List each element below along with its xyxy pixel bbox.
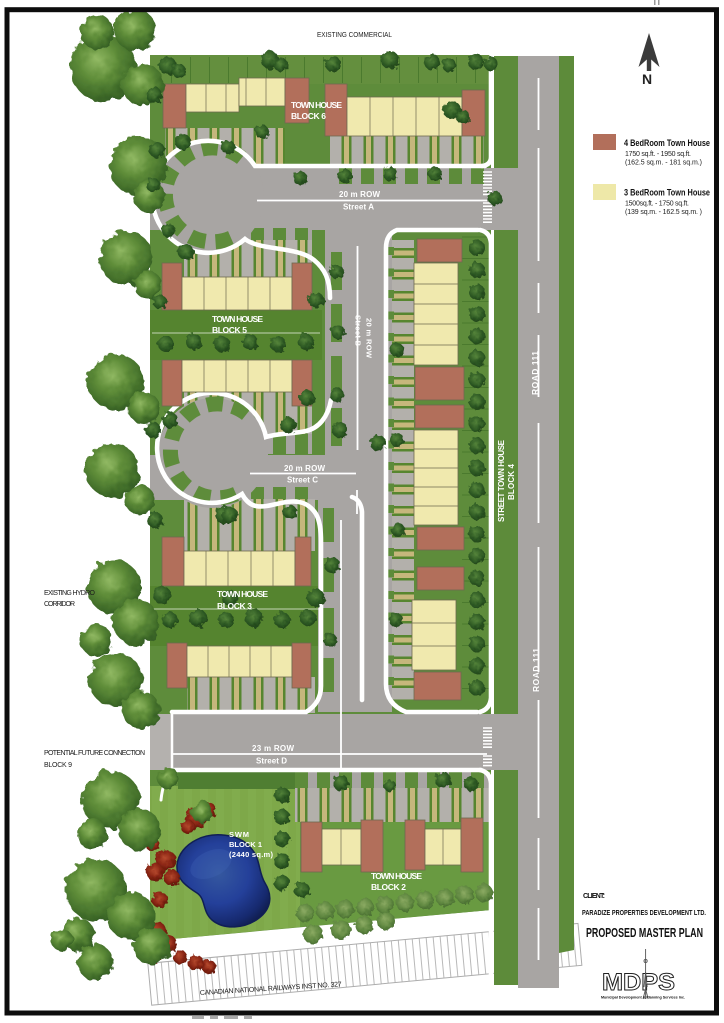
svg-text:POTENTIAL FUTURE CONNECTION: POTENTIAL FUTURE CONNECTION — [44, 750, 145, 757]
svg-text:3 BedRoom Town House: 3 BedRoom Town House — [624, 188, 710, 198]
svg-text:20 m ROW: 20 m ROW — [284, 464, 325, 473]
svg-text:SWM: SWM — [229, 830, 249, 839]
svg-text:Street D: Street D — [256, 757, 287, 766]
svg-text:1750 sq.ft. - 1950 sq.ft.: 1750 sq.ft. - 1950 sq.ft. — [625, 151, 691, 158]
svg-text:TOWN HOUSE: TOWN HOUSE — [371, 871, 422, 881]
svg-text:EXISTING COMMERCIAL: EXISTING COMMERCIAL — [317, 30, 392, 39]
svg-text:N: N — [642, 71, 652, 87]
svg-text:BLOCK 5: BLOCK 5 — [212, 325, 247, 335]
svg-text:PROPOSED MASTER PLAN: PROPOSED MASTER PLAN — [586, 926, 703, 940]
svg-text:20 m ROW: 20 m ROW — [339, 190, 380, 199]
svg-text:20 m ROW: 20 m ROW — [365, 318, 374, 359]
svg-text:CORRIDOR: CORRIDOR — [44, 601, 75, 608]
svg-text:TOWN HOUSE: TOWN HOUSE — [212, 314, 263, 324]
svg-text:(162.5 sq.m. - 181 sq.m.): (162.5 sq.m. - 181 sq.m.) — [625, 160, 702, 167]
svg-text:ROAD 111: ROAD 111 — [531, 648, 541, 692]
svg-text:BLOCK 3: BLOCK 3 — [217, 601, 252, 611]
svg-text:BLOCK 6: BLOCK 6 — [291, 111, 326, 121]
svg-text:EXISTING HYDRO: EXISTING HYDRO — [44, 590, 96, 597]
svg-text:BLOCK 9: BLOCK 9 — [44, 762, 72, 769]
svg-text:ROAD 111: ROAD 111 — [530, 351, 540, 395]
svg-text:STREET TOWN HOUSE: STREET TOWN HOUSE — [497, 439, 506, 522]
svg-text:(2440 sq.m): (2440 sq.m) — [229, 850, 274, 859]
svg-text:Municipal Development & Planni: Municipal Development & Planning Service… — [601, 995, 685, 1000]
svg-text:BLOCK 1: BLOCK 1 — [229, 840, 262, 849]
svg-text:Street B: Street B — [354, 315, 363, 347]
svg-text:1500sq.ft. - 1750 sq.ft.: 1500sq.ft. - 1750 sq.ft. — [625, 201, 689, 208]
svg-text:(139 sq.m. - 162.5 sq.m. ): (139 sq.m. - 162.5 sq.m. ) — [625, 209, 702, 216]
svg-text:Street C: Street C — [287, 476, 318, 485]
svg-text:BLOCK 2: BLOCK 2 — [371, 882, 406, 892]
svg-text:PARADIZE PROPERTIES DEVELOPMEN: PARADIZE PROPERTIES DEVELOPMENT LTD. — [582, 908, 706, 917]
svg-text:23 m ROW: 23 m ROW — [252, 744, 294, 753]
svg-text:BLOCK 4: BLOCK 4 — [507, 463, 516, 500]
svg-text:4 BedRoom Town House: 4 BedRoom Town House — [624, 138, 710, 148]
svg-text:TOWN HOUSE: TOWN HOUSE — [217, 589, 268, 599]
svg-text:CLIENT:: CLIENT: — [583, 893, 605, 900]
svg-text:MDPS: MDPS — [602, 969, 675, 996]
svg-text:TOWN HOUSE: TOWN HOUSE — [291, 100, 342, 110]
svg-text:Street A: Street A — [343, 203, 374, 212]
